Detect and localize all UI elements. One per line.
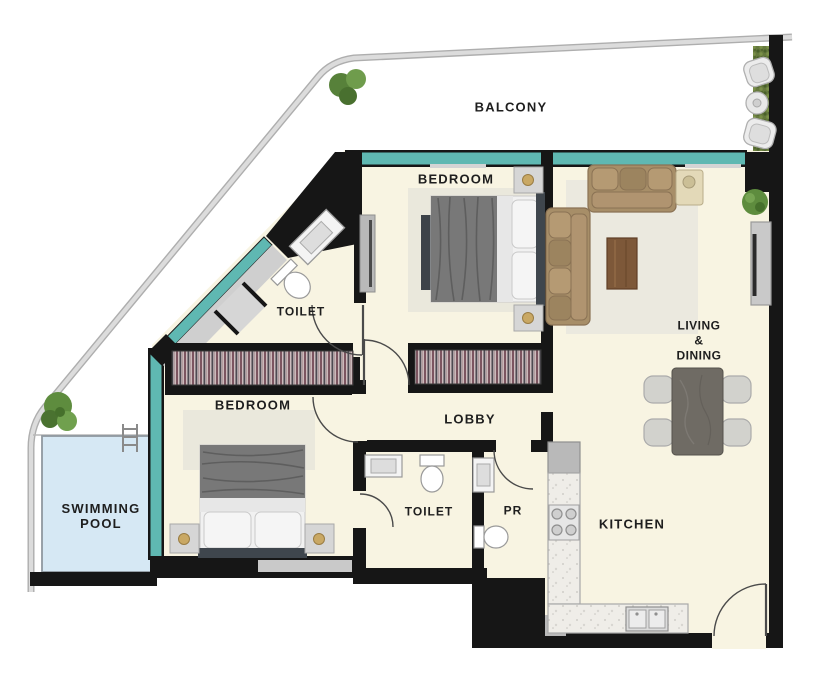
pool-tree <box>41 392 77 431</box>
window-sill-bottom <box>258 560 352 572</box>
wardrobe-bedroom-top <box>415 350 541 384</box>
swimming-pool-area <box>33 392 153 572</box>
dresser <box>360 215 375 292</box>
floor-plan: BALCONY BEDROOM TOILET BEDROOM LOBBY SWI… <box>0 0 823 683</box>
room-label-kitchen: KITCHEN <box>599 517 665 532</box>
balcony-table <box>746 92 768 114</box>
tv-unit <box>751 222 771 305</box>
living-plant <box>742 189 768 215</box>
room-label-bedroom-top: BEDROOM <box>418 172 494 187</box>
room-label-living-dining: LIVING & DINING <box>677 319 722 364</box>
room-label-bedroom-bottom: BEDROOM <box>215 398 291 413</box>
room-label-toilet-bottom: TOILET <box>405 505 453 520</box>
balcony-trees <box>329 69 366 105</box>
kitchen-sink <box>626 607 668 631</box>
sofa-horizontal <box>588 165 676 212</box>
bed-bench <box>421 215 431 290</box>
room-label-swimming-pool: SWIMMING POOL <box>62 501 141 531</box>
room-label-lobby: LOBBY <box>444 412 496 427</box>
room-label-balcony: BALCONY <box>475 100 548 115</box>
headboard-bottom <box>198 548 307 558</box>
fridge <box>548 442 580 473</box>
room-label-pr: PR <box>504 504 523 519</box>
dining-table <box>672 368 723 455</box>
room-label-toilet-top: TOILET <box>277 305 325 320</box>
sofa-vertical <box>546 208 590 325</box>
balcony-items <box>329 46 778 151</box>
wardrobe-bedroom-bottom <box>172 351 353 385</box>
coffee-table <box>607 238 637 289</box>
headboard-top <box>536 192 545 306</box>
